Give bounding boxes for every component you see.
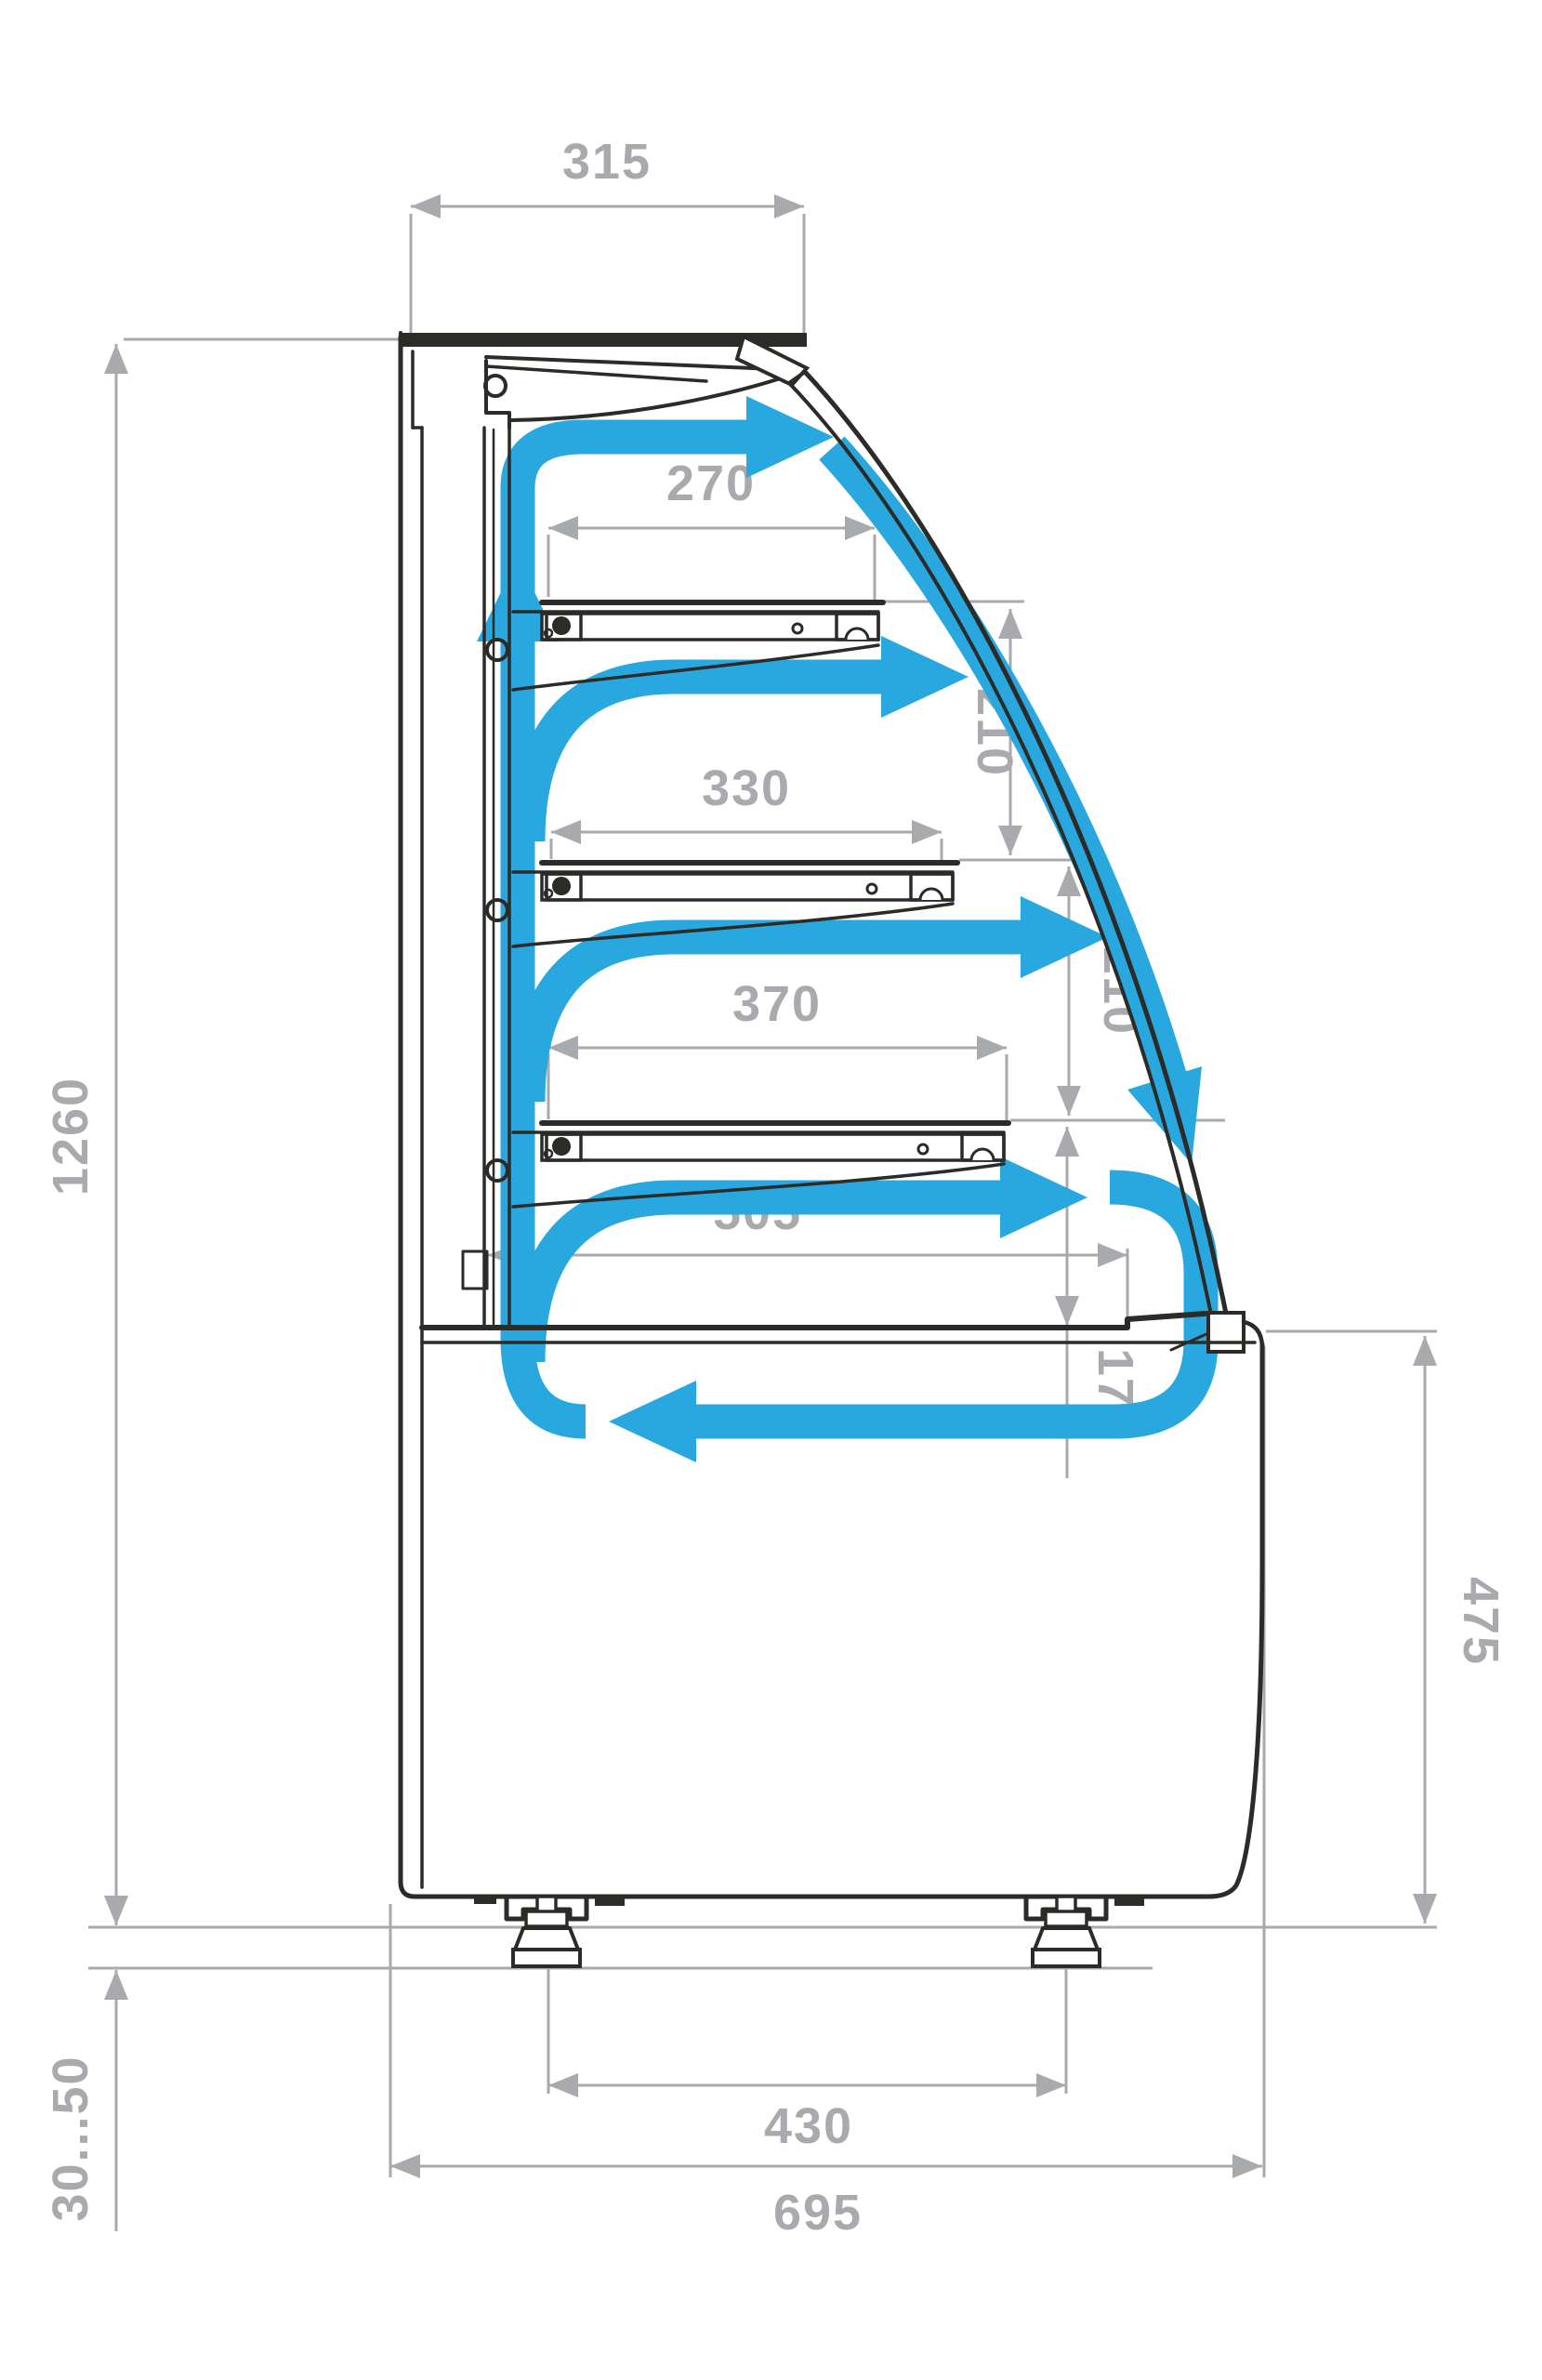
- foot-right: [1026, 1897, 1106, 1966]
- airflow-canopy-arrowhead: [746, 396, 834, 478]
- airflow-glass-arrowhead: [1127, 1066, 1202, 1164]
- rear-wall: [401, 337, 509, 1887]
- dim-label-270: 270: [666, 456, 756, 511]
- airflow-shelf3-arrowhead: [1000, 1157, 1087, 1238]
- dim-label-1260: 1260: [43, 1077, 99, 1196]
- dim-label-430: 430: [764, 2098, 853, 2154]
- glass-bottom-rail: [1208, 1313, 1244, 1352]
- dim-base-height: 475: [1413, 1336, 1509, 1924]
- dim-label-30-50: 30...50: [43, 2055, 99, 2221]
- dim-shelf1-depth: 270: [548, 456, 875, 540]
- dim-overall-depth: 695: [390, 2154, 1262, 2241]
- dim-case-height: 1260: [43, 344, 128, 1925]
- airflow-layer: [477, 396, 1202, 1462]
- dim-feet-spacing: 430: [548, 2073, 1066, 2154]
- airflow-return-arrowhead: [609, 1381, 696, 1462]
- airflow-shelf1-outlet: [528, 677, 883, 841]
- drawing-canvas: 315 270 330 370 505: [0, 0, 1542, 2380]
- dim-label-695: 695: [773, 2185, 863, 2241]
- dim-label-330: 330: [702, 760, 791, 816]
- canopy: [401, 333, 807, 428]
- airflow-shelf1-arrowhead: [881, 636, 969, 718]
- dim-shelf3-depth: 370: [548, 976, 1007, 1060]
- dim-foot-adjust-range: 30...50: [43, 1850, 128, 2231]
- dim-label-315: 315: [562, 134, 652, 190]
- dim-label-370: 370: [732, 976, 822, 1032]
- foot-left: [507, 1897, 586, 1966]
- display-case-cross-section: 315 270 330 370 505: [0, 0, 1542, 2380]
- dim-label-475: 475: [1453, 1577, 1509, 1666]
- dim-canopy-depth: 315: [411, 134, 804, 218]
- dim-shelf2-depth: 330: [551, 760, 942, 844]
